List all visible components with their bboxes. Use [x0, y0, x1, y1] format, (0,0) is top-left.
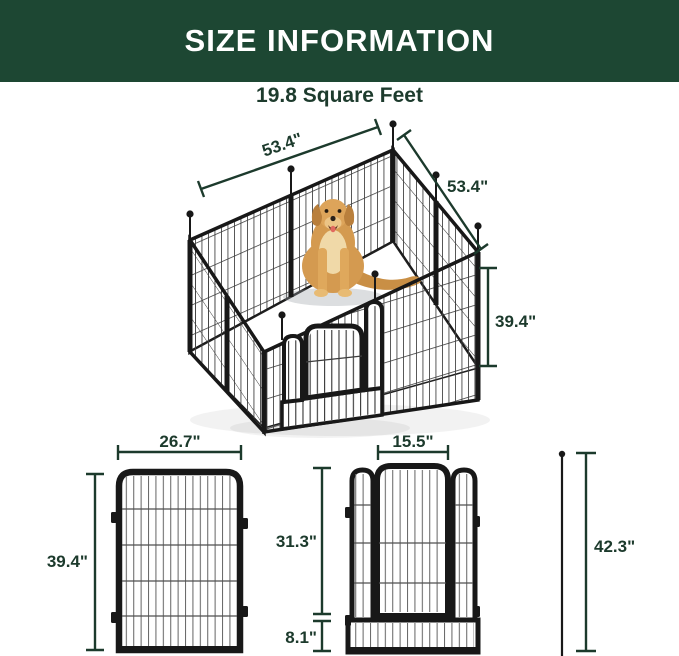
door-upper-height-label: 31.3"	[276, 532, 317, 551]
dog-paw-right	[338, 289, 352, 297]
door-base-bottom-bar	[346, 647, 480, 654]
connector-rod	[559, 451, 565, 656]
size-information-infographic: SIZE INFORMATION 19.8 Square Feet	[0, 0, 679, 656]
dog-paw-left	[314, 289, 328, 297]
pen-door-bars	[309, 330, 359, 395]
single-panel-diagram: 26.7" 39.4"	[47, 432, 248, 653]
pin-ball-icon	[372, 271, 377, 276]
door-side-strip-right-bars	[368, 306, 380, 388]
size-diagrams-canvas: 53.4" 53.4" 39.4"	[0, 0, 679, 656]
pin-ball-icon	[187, 211, 192, 216]
dog-eye-right	[338, 209, 342, 213]
panel-height-dimension	[86, 474, 104, 650]
door-width-label: 15.5"	[392, 432, 433, 451]
panel-height-label: 39.4"	[47, 552, 88, 571]
door-right-strip-wires	[456, 474, 472, 617]
dog-tongue	[330, 226, 335, 232]
playpen-illustration: 53.4" 53.4" 39.4"	[187, 119, 536, 438]
hero-depth-label: 53.4"	[447, 177, 488, 196]
pin-ball-icon	[390, 121, 395, 126]
door-gate-wires	[381, 470, 444, 612]
rod-length-label: 42.3"	[594, 537, 635, 556]
dog-front-leg-right	[340, 248, 349, 294]
rod-ball-icon	[559, 451, 565, 457]
pin-ball-icon	[475, 223, 480, 228]
hero-height-label: 39.4"	[495, 312, 536, 331]
panel-bottom-bar	[119, 646, 240, 653]
panel-wires	[123, 476, 236, 647]
pin-ball-icon	[433, 172, 438, 177]
door-left-strip-wires	[355, 474, 370, 617]
pin-ball-icon	[288, 166, 293, 171]
dog-front-leg-left	[318, 248, 327, 294]
pin-ball-icon	[279, 312, 284, 317]
dog-eye-left	[325, 209, 329, 213]
door-lower-height-label: 8.1"	[285, 628, 317, 647]
door-panel-diagram: 15.5" 31.3" 8.1"	[276, 432, 635, 656]
door-side-strip-left-bars	[286, 340, 300, 400]
panel-width-label: 26.7"	[159, 432, 200, 451]
dog-nose	[330, 216, 335, 221]
rod-length-dimension	[576, 453, 596, 651]
door-base-bars	[352, 623, 474, 647]
